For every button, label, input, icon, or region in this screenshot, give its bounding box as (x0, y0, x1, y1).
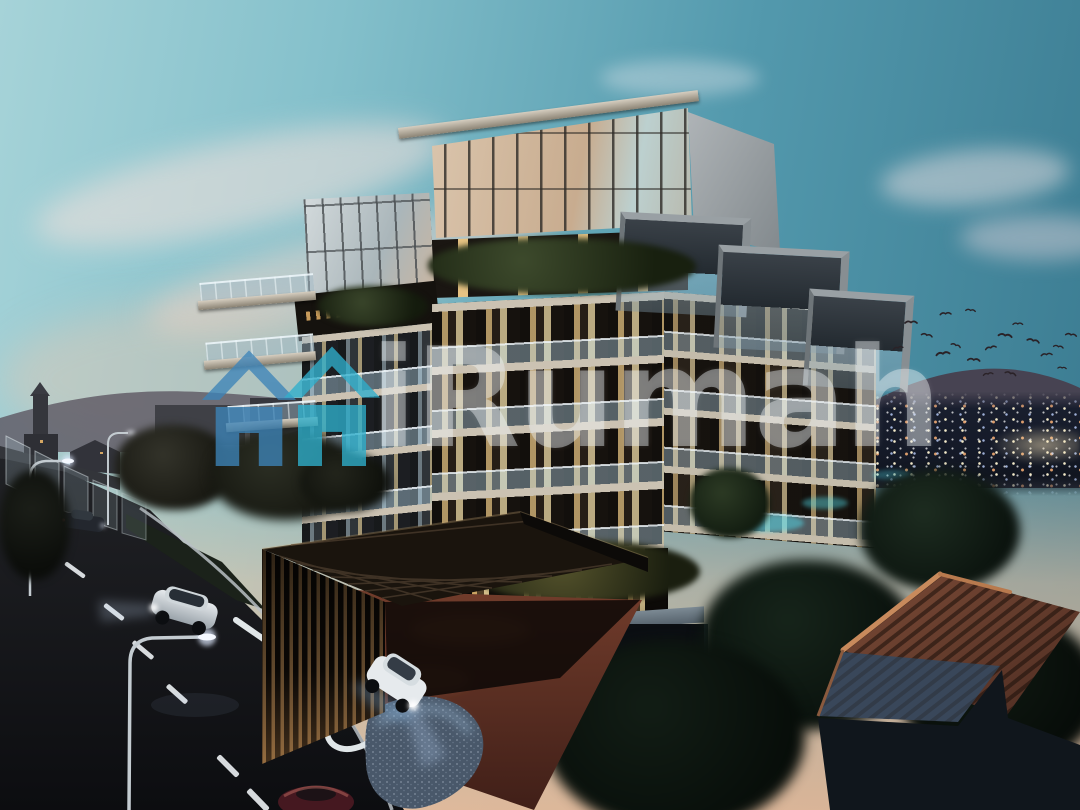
logo-house-right (284, 346, 380, 466)
logo-house-left (202, 350, 296, 466)
property-rendering: iRumah (0, 0, 1080, 810)
watermark-text: iRumah (370, 330, 939, 468)
